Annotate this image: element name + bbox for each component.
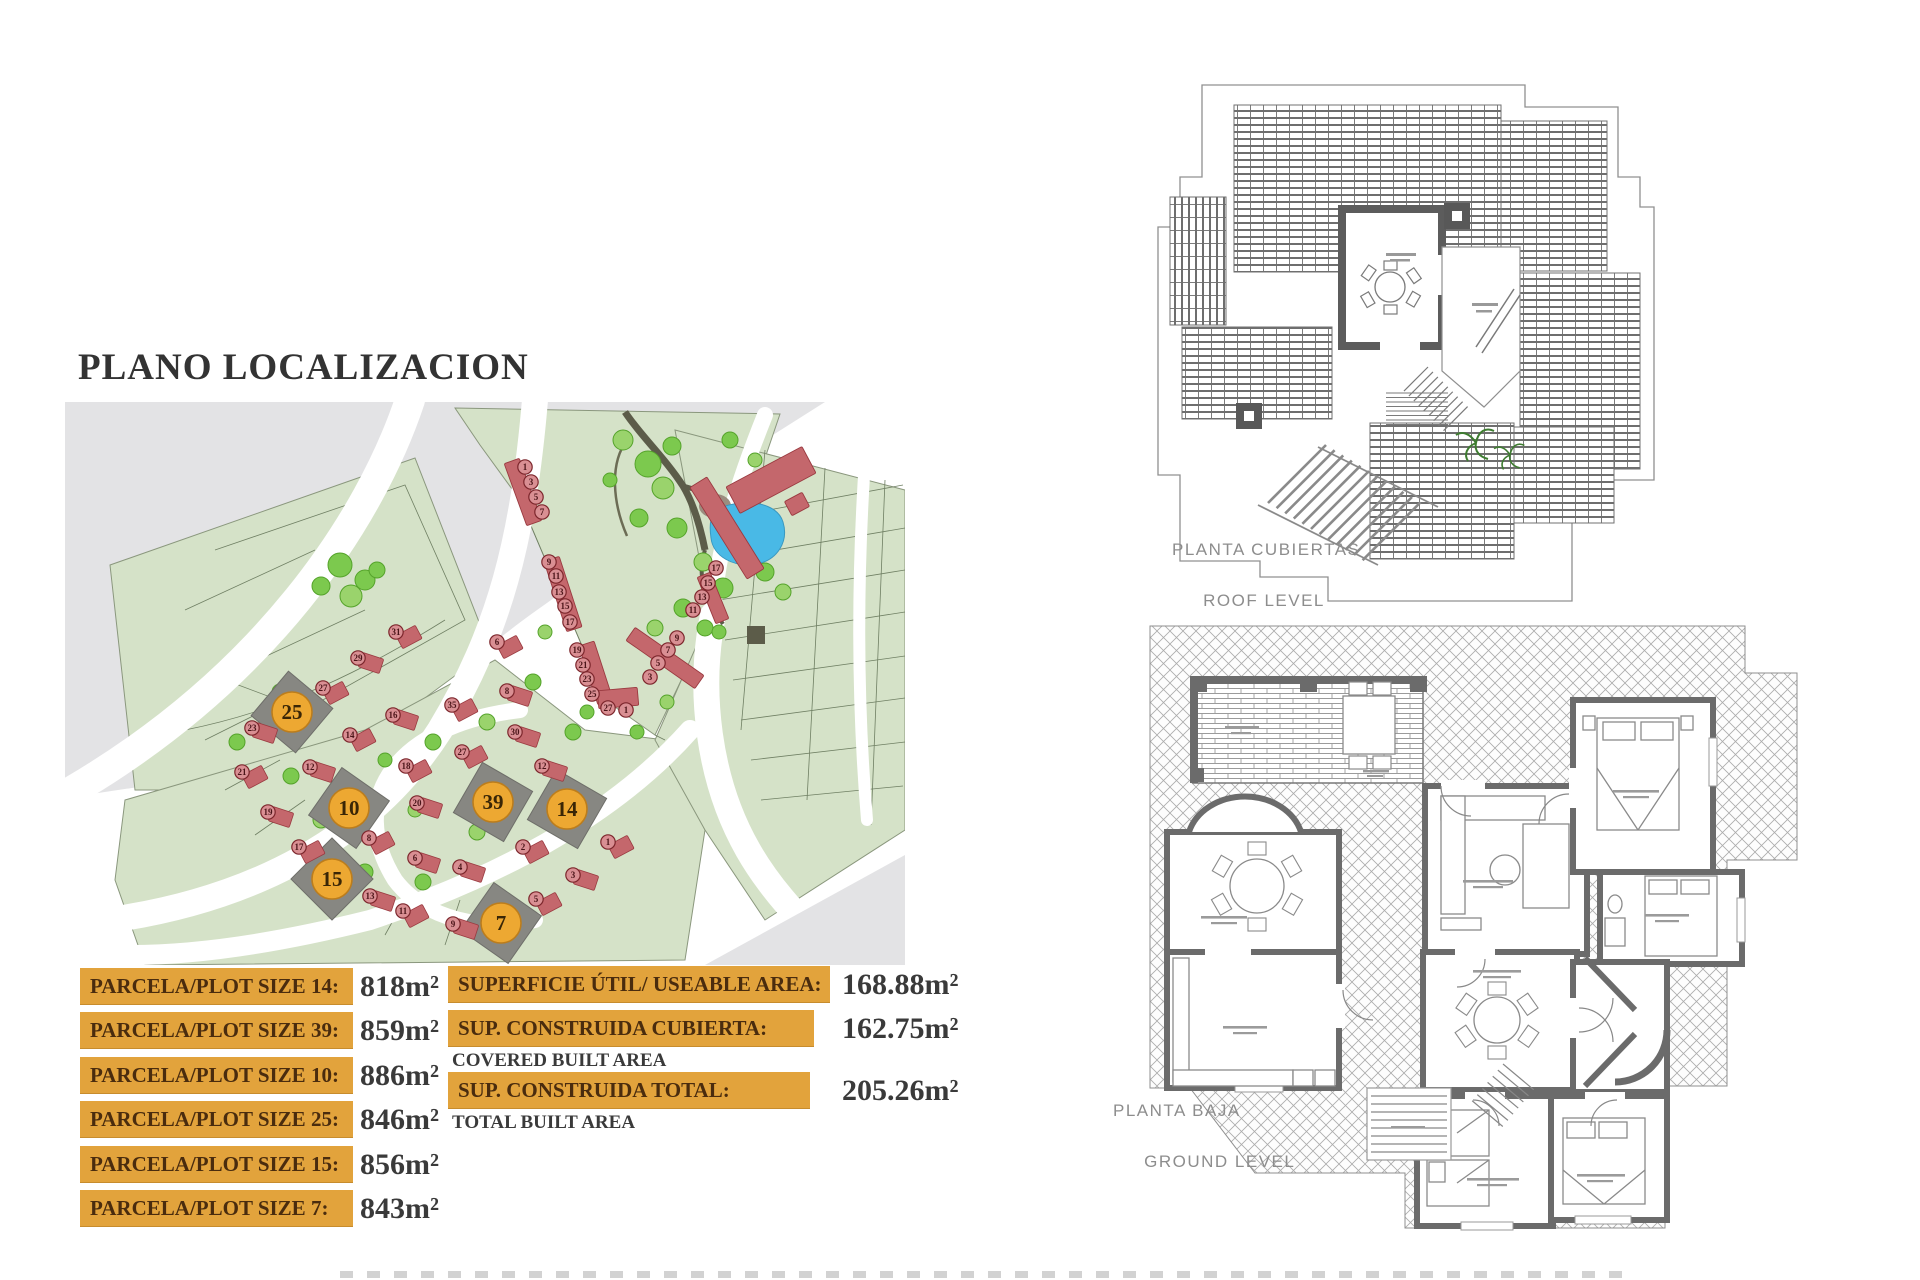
- plot-number-circle: 19: [261, 805, 275, 819]
- plot-number-circle: 4: [453, 860, 467, 874]
- svg-text:9: 9: [675, 633, 680, 643]
- tree-icon: [312, 577, 330, 595]
- plot-number-circle: 29: [351, 651, 365, 665]
- svg-text:8: 8: [367, 833, 372, 843]
- svg-text:17: 17: [566, 617, 576, 627]
- plot-number-circle: 19: [570, 643, 584, 657]
- tree-icon: [630, 509, 648, 527]
- svg-text:18: 18: [402, 761, 412, 771]
- plot-number-circle: 8: [500, 684, 514, 698]
- svg-text:11: 11: [689, 605, 698, 615]
- svg-text:3: 3: [529, 477, 534, 487]
- tree-icon: [652, 477, 674, 499]
- svg-text:5: 5: [534, 894, 539, 904]
- plot-size-bar: PARCELA/PLOT SIZE 7:: [80, 1190, 353, 1227]
- area-bar: SUPERFICIE ÚTIL/ USEABLE AREA:: [448, 966, 830, 1003]
- tree-icon: [229, 734, 245, 750]
- plot-number-circle: 6: [490, 635, 504, 649]
- svg-text:23: 23: [583, 674, 593, 684]
- svg-text:5: 5: [534, 492, 539, 502]
- svg-text:9: 9: [547, 557, 552, 567]
- svg-text:6: 6: [495, 637, 500, 647]
- plot-number-circle: 7: [535, 505, 549, 519]
- svg-text:19: 19: [573, 645, 583, 655]
- tree-icon: [697, 620, 713, 636]
- tree-icon: [712, 625, 726, 639]
- plot-size-bar: PARCELA/PLOT SIZE 15:: [80, 1146, 353, 1183]
- plot-number-circle: 15: [558, 599, 572, 613]
- svg-text:27: 27: [319, 683, 329, 693]
- plot-size-value: 818m²: [360, 968, 439, 1005]
- plot-number-circle: 7: [661, 643, 675, 657]
- svg-text:17: 17: [712, 563, 722, 573]
- plot-size-value: 846m²: [360, 1101, 439, 1138]
- tree-icon: [378, 753, 392, 767]
- svg-text:2: 2: [521, 842, 526, 852]
- ground-porch: [1190, 676, 1427, 783]
- plot-number-circle: 8: [362, 831, 376, 845]
- plot-size-value: 859m²: [360, 1012, 439, 1049]
- svg-text:3: 3: [648, 672, 653, 682]
- roof-plan: [1140, 55, 1690, 615]
- tree-icon: [613, 430, 633, 450]
- plot-number-circle: 27: [455, 745, 469, 759]
- svg-text:39: 39: [483, 790, 504, 814]
- svg-text:14: 14: [557, 797, 579, 821]
- plot-number-circle: 5: [529, 892, 543, 906]
- svg-text:3: 3: [571, 870, 576, 880]
- svg-text:12: 12: [306, 762, 316, 772]
- plot-number-circle: 31: [389, 625, 403, 639]
- svg-text:1: 1: [624, 705, 629, 715]
- area-value: 162.75m²: [842, 1010, 958, 1047]
- svg-text:6: 6: [413, 853, 418, 863]
- plot-number-circle: 5: [651, 656, 665, 670]
- plot-number-circle: 3: [566, 868, 580, 882]
- plot-number-circle: 1: [619, 703, 633, 717]
- svg-text:15: 15: [704, 578, 714, 588]
- svg-text:25: 25: [282, 700, 303, 724]
- plot-number-circle: 9: [446, 917, 460, 931]
- svg-text:31: 31: [392, 627, 402, 637]
- plot-number-circle: 23: [245, 721, 259, 735]
- plot-number-circle: 11: [686, 603, 700, 617]
- svg-text:4: 4: [458, 862, 463, 872]
- plot-number-circle: 23: [580, 672, 594, 686]
- svg-text:19: 19: [264, 807, 274, 817]
- plot-number-circle: 11: [549, 569, 563, 583]
- plot-number-circle: 15: [701, 576, 715, 590]
- tree-icon: [667, 518, 687, 538]
- plot-size-bar: PARCELA/PLOT SIZE 39:: [80, 1012, 353, 1049]
- ground-plan-label: PLANTA BAJA GROUND LEVEL: [1113, 1098, 1295, 1175]
- svg-text:7: 7: [540, 507, 545, 517]
- svg-text:13: 13: [698, 592, 708, 602]
- plot-number-circle: 35: [445, 698, 459, 712]
- plot-number-circle: 18: [399, 759, 413, 773]
- tree-icon: [635, 451, 661, 477]
- svg-text:10: 10: [339, 796, 360, 820]
- area-sublabel: COVERED BUILT AREA: [452, 1050, 666, 1072]
- tree-icon: [425, 734, 441, 750]
- svg-text:35: 35: [448, 700, 458, 710]
- plot-size-bar: PARCELA/PLOT SIZE 25:: [80, 1101, 353, 1138]
- svg-text:17: 17: [295, 842, 305, 852]
- plot-number-circle: 1: [601, 835, 615, 849]
- tree-icon: [328, 553, 352, 577]
- svg-text:16: 16: [389, 710, 399, 720]
- plot-number-circle: 3: [643, 670, 657, 684]
- plot-number-circle: 13: [363, 889, 377, 903]
- tree-icon: [647, 620, 663, 636]
- plot-number-circle: 13: [695, 590, 709, 604]
- tree-icon: [630, 725, 644, 739]
- svg-text:7: 7: [496, 911, 507, 935]
- tree-icon: [580, 705, 594, 719]
- site-plan-map: 25103914157 1357911131517192123252711715…: [65, 380, 905, 965]
- plot-number-circle: 9: [542, 555, 556, 569]
- plot-number-circle: 17: [292, 840, 306, 854]
- plan-sheet-page: { "title": "PLANO LOCALIZACION", "plot_t…: [0, 0, 1920, 1280]
- tree-icon: [660, 695, 674, 709]
- svg-text:27: 27: [458, 747, 468, 757]
- plot-number-circle: 11: [396, 904, 410, 918]
- svg-text:1: 1: [606, 837, 611, 847]
- svg-text:30: 30: [511, 727, 521, 737]
- svg-text:21: 21: [579, 660, 589, 670]
- svg-text:14: 14: [346, 730, 356, 740]
- plot-size-bar: PARCELA/PLOT SIZE 14:: [80, 968, 353, 1005]
- plot-number-circle: 2: [516, 840, 530, 854]
- plot-number-circle: 17: [563, 615, 577, 629]
- svg-text:13: 13: [366, 891, 376, 901]
- svg-text:13: 13: [555, 587, 565, 597]
- svg-text:15: 15: [561, 601, 571, 611]
- tree-icon: [340, 585, 362, 607]
- plot-number-circle: 20: [410, 796, 424, 810]
- roof-table: [1375, 272, 1405, 302]
- svg-text:9: 9: [451, 919, 456, 929]
- plot-number-circle: 12: [535, 759, 549, 773]
- plot-number-circle: 21: [235, 765, 249, 779]
- area-sublabel: TOTAL BUILT AREA: [452, 1112, 635, 1134]
- tree-icon: [603, 473, 617, 487]
- tree-icon: [479, 714, 495, 730]
- area-value: 205.26m²: [842, 1072, 958, 1109]
- tree-icon: [663, 437, 681, 455]
- plot-number-circle: 3: [524, 475, 538, 489]
- roof-chimney-core: [1244, 411, 1254, 421]
- plot-size-value: 886m²: [360, 1057, 439, 1094]
- svg-text:27: 27: [604, 703, 614, 713]
- svg-text:5: 5: [656, 658, 661, 668]
- roof-plan-label: PLANTA CUBIERTAS ROOF LEVEL: [1172, 537, 1360, 614]
- svg-text:1: 1: [523, 462, 528, 472]
- area-bar: SUP. CONSTRUIDA TOTAL:: [448, 1072, 810, 1109]
- tree-icon: [722, 432, 738, 448]
- plot-number-circle: 30: [508, 725, 522, 739]
- plot-number-circle: 9: [670, 631, 684, 645]
- plot-number-circle: 27: [316, 681, 330, 695]
- svg-text:11: 11: [552, 571, 561, 581]
- tree-icon: [565, 724, 581, 740]
- svg-text:23: 23: [248, 723, 258, 733]
- plot-number-circle: 27: [601, 701, 615, 715]
- plot-number-circle: 12: [303, 760, 317, 774]
- plot-number-circle: 17: [709, 561, 723, 575]
- cropped-text-strip: [340, 1271, 1625, 1278]
- tree-icon: [748, 453, 762, 467]
- svg-text:21: 21: [238, 767, 248, 777]
- plot-number-circle: 14: [343, 728, 357, 742]
- svg-text:15: 15: [322, 867, 343, 891]
- svg-text:29: 29: [354, 653, 364, 663]
- plot-size-value: 856m²: [360, 1146, 439, 1183]
- plot-size-bar: PARCELA/PLOT SIZE 10:: [80, 1057, 353, 1094]
- svg-text:8: 8: [505, 686, 510, 696]
- plot-number-circle: 16: [386, 708, 400, 722]
- plot-size-value: 843m²: [360, 1190, 439, 1227]
- svg-text:11: 11: [399, 906, 408, 916]
- plot-number-circle: 1: [518, 460, 532, 474]
- tree-icon: [415, 874, 431, 890]
- area-bar: SUP. CONSTRUIDA CUBIERTA:: [448, 1010, 814, 1047]
- plot-number-circle: 6: [408, 851, 422, 865]
- plot-number-circle: 5: [529, 490, 543, 504]
- plot-number-circle: 13: [552, 585, 566, 599]
- tree-icon: [538, 625, 552, 639]
- plot-number-circle: 25: [585, 687, 599, 701]
- porch-table: [1343, 696, 1395, 754]
- tree-icon: [283, 768, 299, 784]
- tree-icon: [775, 584, 791, 600]
- area-value: 168.88m²: [842, 966, 958, 1003]
- tree-icon: [369, 562, 385, 578]
- tree-icon: [525, 674, 541, 690]
- svg-text:7: 7: [666, 645, 671, 655]
- plot-number-circle: 21: [576, 658, 590, 672]
- svg-text:20: 20: [413, 798, 423, 808]
- svg-text:25: 25: [588, 689, 598, 699]
- svg-text:12: 12: [538, 761, 548, 771]
